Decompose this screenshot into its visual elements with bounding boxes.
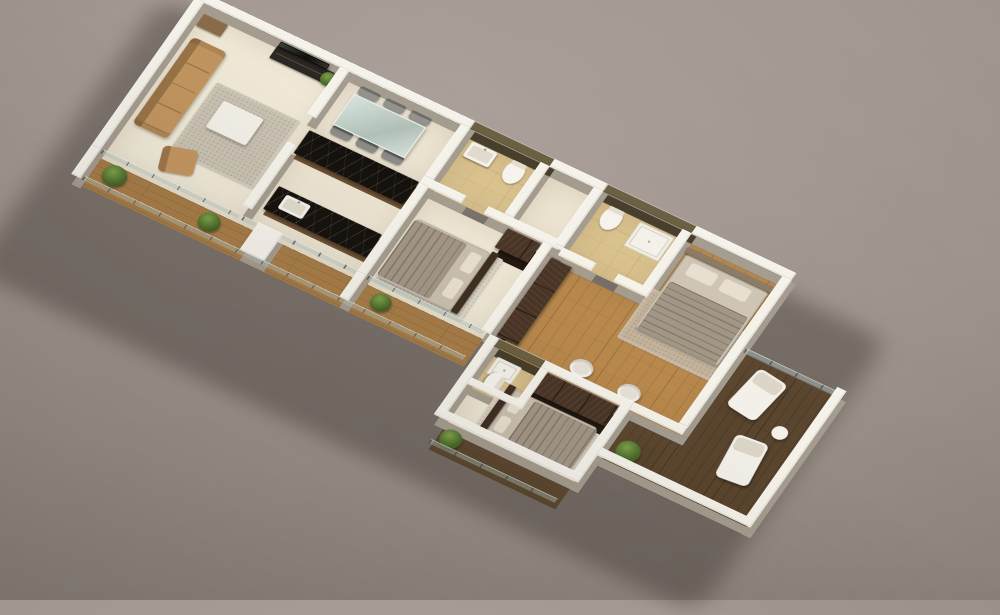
scene-background: [0, 0, 1000, 600]
page: { "scene": { "description_colors": { "ba…: [0, 0, 1000, 600]
floorplan-3d-model: [21, 2, 904, 589]
